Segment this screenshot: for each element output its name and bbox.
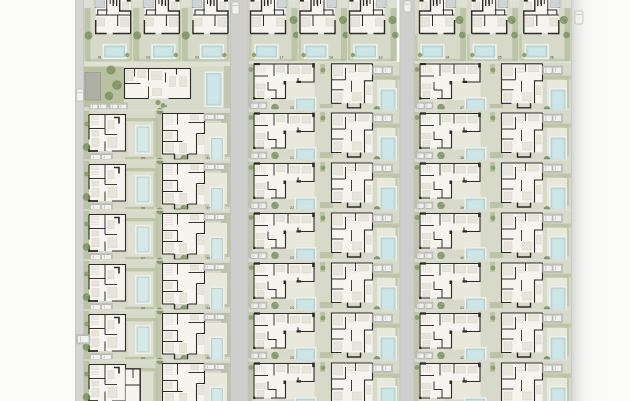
- svg-text:17: 17: [280, 55, 284, 59]
- svg-text:03: 03: [195, 55, 199, 59]
- svg-text:35: 35: [498, 55, 502, 59]
- svg-text:18: 18: [329, 55, 333, 59]
- svg-text:34: 34: [446, 55, 450, 59]
- svg-text:02: 02: [146, 55, 150, 59]
- svg-text:36: 36: [550, 55, 554, 59]
- svg-text:01: 01: [98, 55, 102, 59]
- svg-text:19: 19: [379, 55, 383, 59]
